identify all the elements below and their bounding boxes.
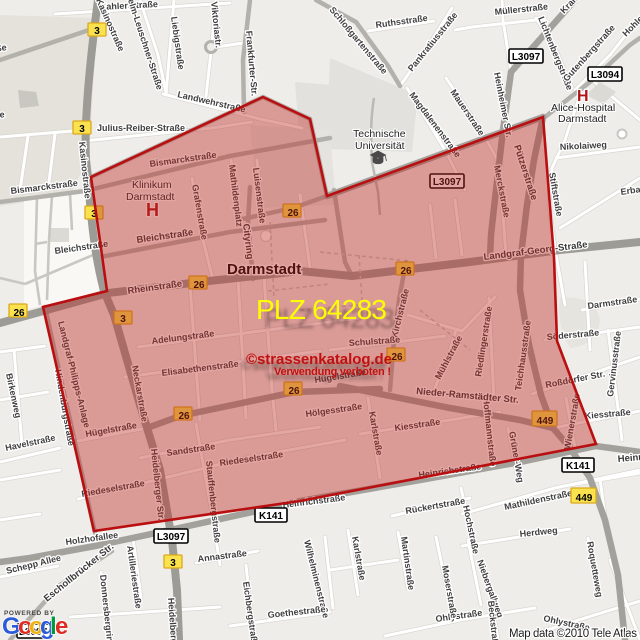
svg-text:K141: K141 (259, 511, 283, 522)
svg-text:L3097: L3097 (512, 52, 541, 63)
svg-text:Julius-Reiber-Straße: Julius-Reiber-Straße (97, 123, 185, 133)
svg-text:H: H (577, 88, 589, 105)
svg-text:Universität: Universität (355, 140, 405, 152)
svg-text:3: 3 (79, 124, 85, 135)
svg-text:Darmstadt: Darmstadt (558, 113, 607, 125)
svg-text:3: 3 (170, 558, 176, 569)
svg-text:L3097: L3097 (157, 532, 186, 543)
svg-text:3: 3 (94, 26, 100, 37)
svg-text:Verwendung verboten !: Verwendung verboten ! (274, 366, 391, 378)
svg-text:PLZ 64283: PLZ 64283 (256, 294, 387, 325)
svg-text:449: 449 (576, 493, 593, 504)
svg-text:Technische: Technische (353, 128, 406, 140)
svg-text:L3094: L3094 (591, 70, 620, 81)
svg-text:e: e (55, 613, 68, 640)
svg-text:Map data ©2010 Tele Atlas: Map data ©2010 Tele Atlas (509, 628, 637, 640)
svg-text:K141: K141 (566, 461, 590, 472)
svg-text:26: 26 (13, 308, 25, 319)
